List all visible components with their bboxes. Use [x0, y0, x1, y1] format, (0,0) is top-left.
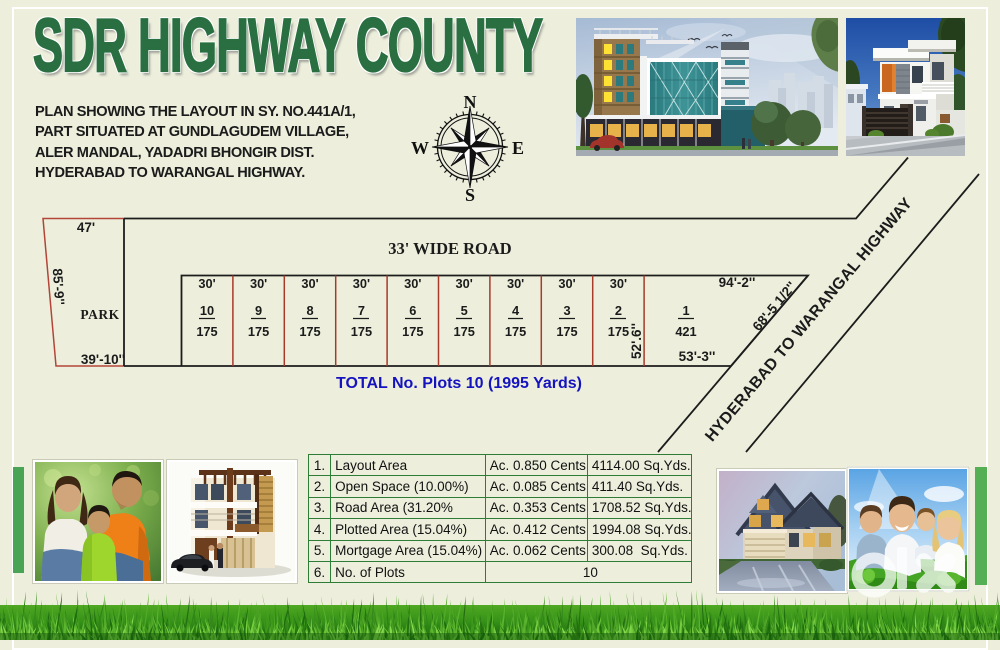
svg-text:421: 421 — [675, 324, 696, 339]
svg-text:175: 175 — [505, 324, 526, 339]
svg-text:85'-9'': 85'-9'' — [50, 268, 68, 306]
svg-text:175: 175 — [351, 324, 372, 339]
svg-text:30': 30' — [301, 276, 318, 291]
svg-text:5: 5 — [461, 303, 468, 318]
svg-text:175: 175 — [196, 324, 217, 339]
svg-text:8: 8 — [306, 303, 313, 318]
svg-text:175: 175 — [608, 324, 629, 339]
svg-text:7: 7 — [358, 303, 365, 318]
svg-text:175: 175 — [556, 324, 577, 339]
svg-text:30': 30' — [404, 276, 421, 291]
svg-text:4: 4 — [512, 303, 520, 318]
svg-text:6: 6 — [409, 303, 416, 318]
svg-text:30': 30' — [353, 276, 370, 291]
svg-text:47': 47' — [77, 220, 95, 235]
svg-text:53'-3'': 53'-3'' — [679, 349, 716, 364]
svg-text:175: 175 — [454, 324, 475, 339]
svg-text:68'-5 1/2'': 68'-5 1/2'' — [750, 279, 800, 334]
svg-text:33' WIDE ROAD: 33' WIDE ROAD — [388, 239, 512, 258]
svg-text:30': 30' — [250, 276, 267, 291]
svg-text:3: 3 — [563, 303, 570, 318]
svg-text:175: 175 — [402, 324, 423, 339]
svg-text:175: 175 — [248, 324, 269, 339]
svg-text:52'.6'': 52'.6'' — [629, 323, 644, 359]
svg-text:TOTAL No. Plots 10 (1995 Yards: TOTAL No. Plots 10 (1995 Yards) — [336, 375, 582, 392]
svg-text:9: 9 — [255, 303, 262, 318]
svg-text:2: 2 — [615, 303, 622, 318]
svg-text:10: 10 — [200, 303, 214, 318]
svg-text:30': 30' — [198, 276, 215, 291]
svg-text:HYDERABAD TO WARANGAL HIGHWAY: HYDERABAD TO WARANGAL HIGHWAY — [702, 195, 916, 445]
svg-text:30': 30' — [507, 276, 524, 291]
svg-text:30': 30' — [610, 276, 627, 291]
svg-text:1: 1 — [682, 303, 689, 318]
svg-text:30': 30' — [558, 276, 575, 291]
svg-text:39'-10'': 39'-10'' — [81, 352, 125, 367]
svg-text:175: 175 — [299, 324, 320, 339]
svg-text:PARK: PARK — [80, 307, 119, 322]
svg-text:94'-2'': 94'-2'' — [719, 275, 756, 290]
svg-text:30': 30' — [456, 276, 473, 291]
